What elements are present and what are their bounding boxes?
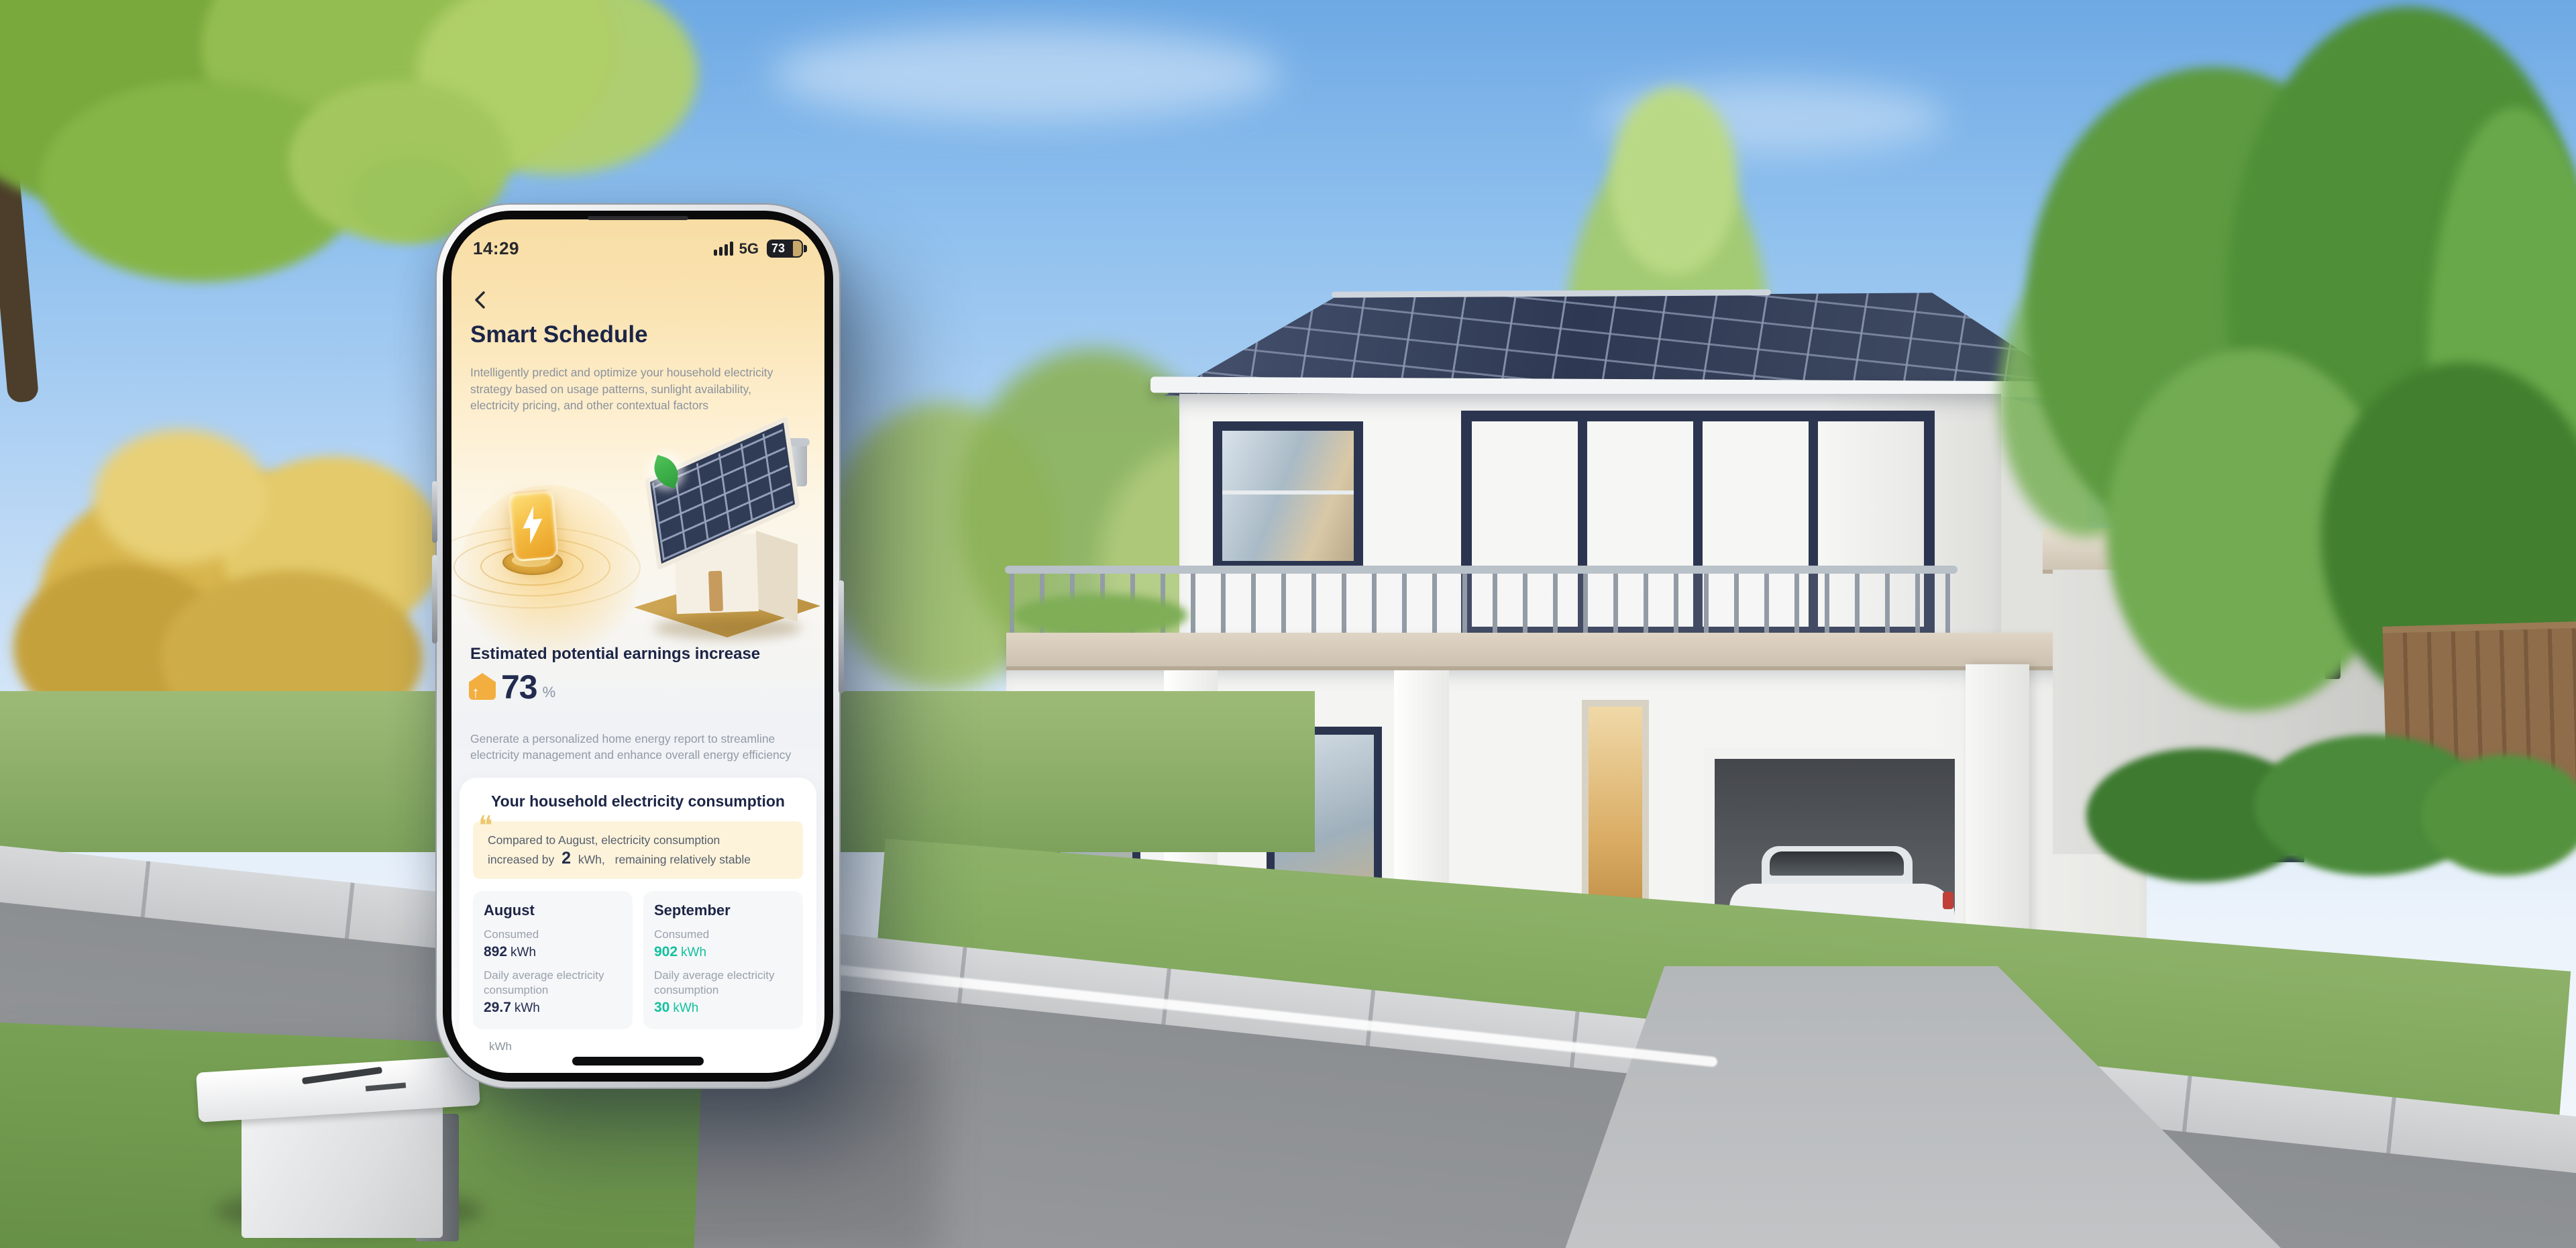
page-description: Intelligently predict and optimize your … xyxy=(470,364,791,414)
daily-average-value: 29.7kWh xyxy=(484,1000,623,1016)
month-card-september: September Consumed 902kWh Daily average … xyxy=(643,891,803,1029)
summary-value: 2 xyxy=(561,849,571,868)
volume-up-button xyxy=(432,481,437,543)
consumed-label: Consumed xyxy=(654,927,794,942)
consumption-card-title: Your household electricity consumption xyxy=(473,792,803,811)
lightning-tile xyxy=(508,488,559,562)
summary-unit: kWh, xyxy=(578,853,605,866)
mini-house-door xyxy=(708,571,723,612)
stage: 14:29 5G 73 xyxy=(0,0,2576,1248)
utility-box xyxy=(201,1060,483,1248)
month-card-august: August Consumed 892kWh Daily average ele… xyxy=(473,891,633,1029)
quote-icon: ❝ xyxy=(478,811,493,841)
summary-line-2: increased by 2 kWh, remaining relatively… xyxy=(488,849,792,869)
month-name: September xyxy=(654,902,794,919)
consumption-summary: ❝ Compared to August, electricity consum… xyxy=(473,821,803,879)
smartphone-mockup: 14:29 5G 73 xyxy=(435,203,841,1089)
background-scene xyxy=(0,0,2576,1248)
box-body xyxy=(241,1100,443,1238)
battery-icon: 73 xyxy=(767,240,803,258)
daily-average-label: Daily average electricity consumption xyxy=(654,968,794,998)
energy-illustration xyxy=(451,418,824,642)
chart-axis-unit: kWh xyxy=(489,1040,803,1053)
mini-house-side-wall xyxy=(756,531,798,622)
chart-tick-row: 60 xyxy=(476,1068,803,1073)
back-button[interactable] xyxy=(470,289,492,311)
battery-percent: 73 xyxy=(771,242,785,256)
status-indicators: 5G 73 xyxy=(714,240,803,258)
month-name: August xyxy=(484,902,623,919)
power-button xyxy=(839,580,844,693)
chevron-left-icon xyxy=(470,289,492,311)
consumed-value: 902kWh xyxy=(654,944,794,960)
volume-down-button xyxy=(432,555,437,643)
status-bar: 14:29 5G 73 xyxy=(451,238,824,259)
home-indicator[interactable] xyxy=(572,1057,704,1065)
consumed-value: 892kWh xyxy=(484,944,623,960)
chart-tick-label: 60 xyxy=(476,1068,488,1073)
report-note: Generate a personalized home energy repo… xyxy=(470,731,796,763)
lightning-icon xyxy=(521,505,545,544)
daily-average-value: 30kWh xyxy=(654,1000,794,1016)
earpiece-speaker xyxy=(588,216,688,220)
earnings-label: Estimated potential earnings increase xyxy=(470,645,760,664)
summary-suffix: remaining relatively stable xyxy=(615,853,751,866)
daily-average-label: Daily average electricity consumption xyxy=(484,968,623,998)
status-time: 14:29 xyxy=(473,238,519,259)
signal-strength-icon xyxy=(714,242,733,256)
house-base-shadow xyxy=(654,617,802,639)
consumption-card: Your household electricity consumption ❝… xyxy=(460,778,816,1073)
earnings-unit: % xyxy=(543,684,556,701)
up-arrow-icon: ↑ xyxy=(472,684,480,703)
consumed-label: Consumed xyxy=(484,927,623,942)
house-increase-icon: ↑ xyxy=(469,673,496,700)
network-type-label: 5G xyxy=(739,240,759,258)
summary-line-1: Compared to August, electricity consumpt… xyxy=(488,831,792,849)
phone-screen[interactable]: 14:29 5G 73 xyxy=(451,219,824,1073)
earnings-value: 73 xyxy=(501,670,537,704)
solar-house-illustration xyxy=(634,422,824,642)
summary-increase-label: increased by xyxy=(488,853,554,866)
battery-nub xyxy=(804,245,807,252)
battery-fill xyxy=(793,241,802,256)
page-title: Smart Schedule xyxy=(470,321,648,348)
month-comparison: August Consumed 892kWh Daily average ele… xyxy=(473,891,803,1029)
earnings-row: ↑ 73 % xyxy=(469,670,555,704)
